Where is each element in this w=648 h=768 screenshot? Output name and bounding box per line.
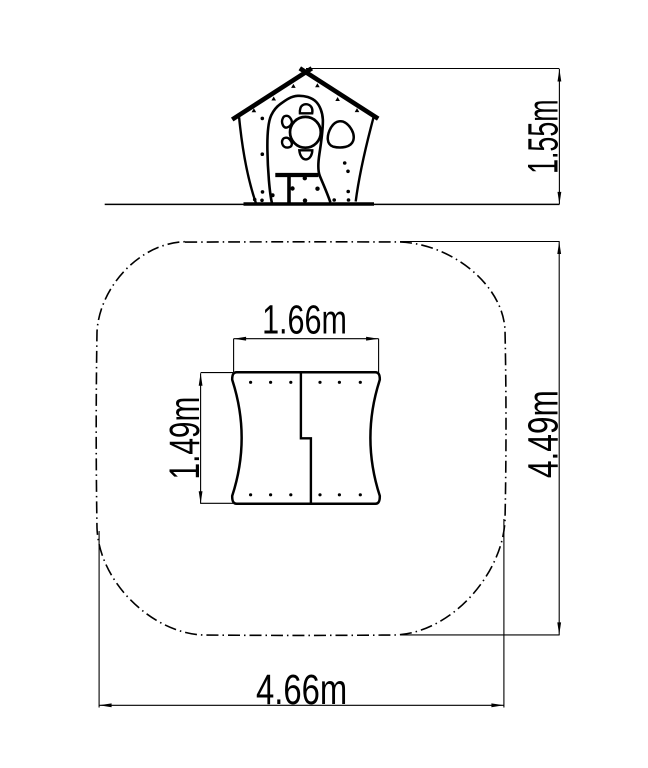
svg-text:1.66m: 1.66m xyxy=(262,296,347,342)
svg-text:1.55m: 1.55m xyxy=(519,99,567,173)
svg-text:4.49m: 4.49m xyxy=(520,390,568,478)
svg-text:1.49m: 1.49m xyxy=(161,397,209,480)
svg-text:4.66m: 4.66m xyxy=(256,666,347,714)
